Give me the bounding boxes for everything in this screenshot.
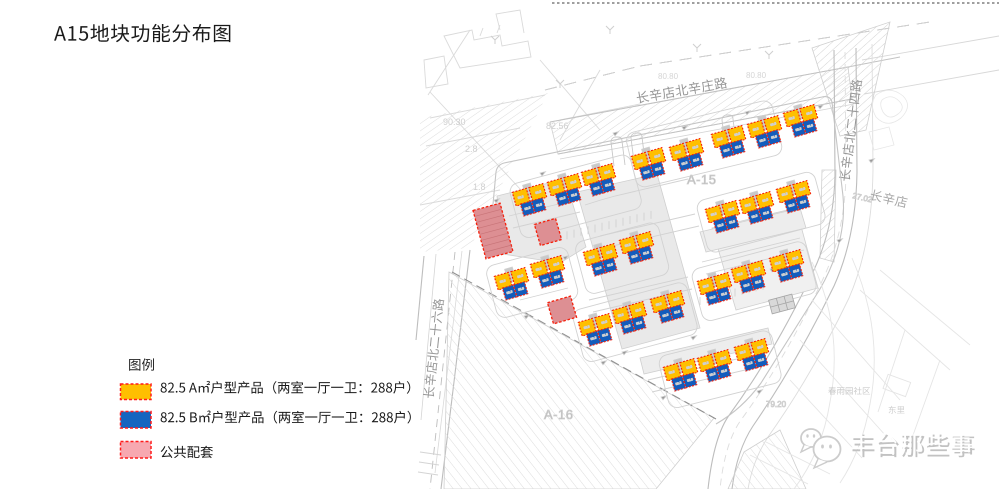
svg-text:A-15: A-15 [687,172,716,187]
svg-text:80.80: 80.80 [658,72,679,81]
svg-text:80.80: 80.80 [746,71,767,80]
svg-text:79.20: 79.20 [766,400,787,409]
svg-text:A-16: A-16 [544,407,573,422]
